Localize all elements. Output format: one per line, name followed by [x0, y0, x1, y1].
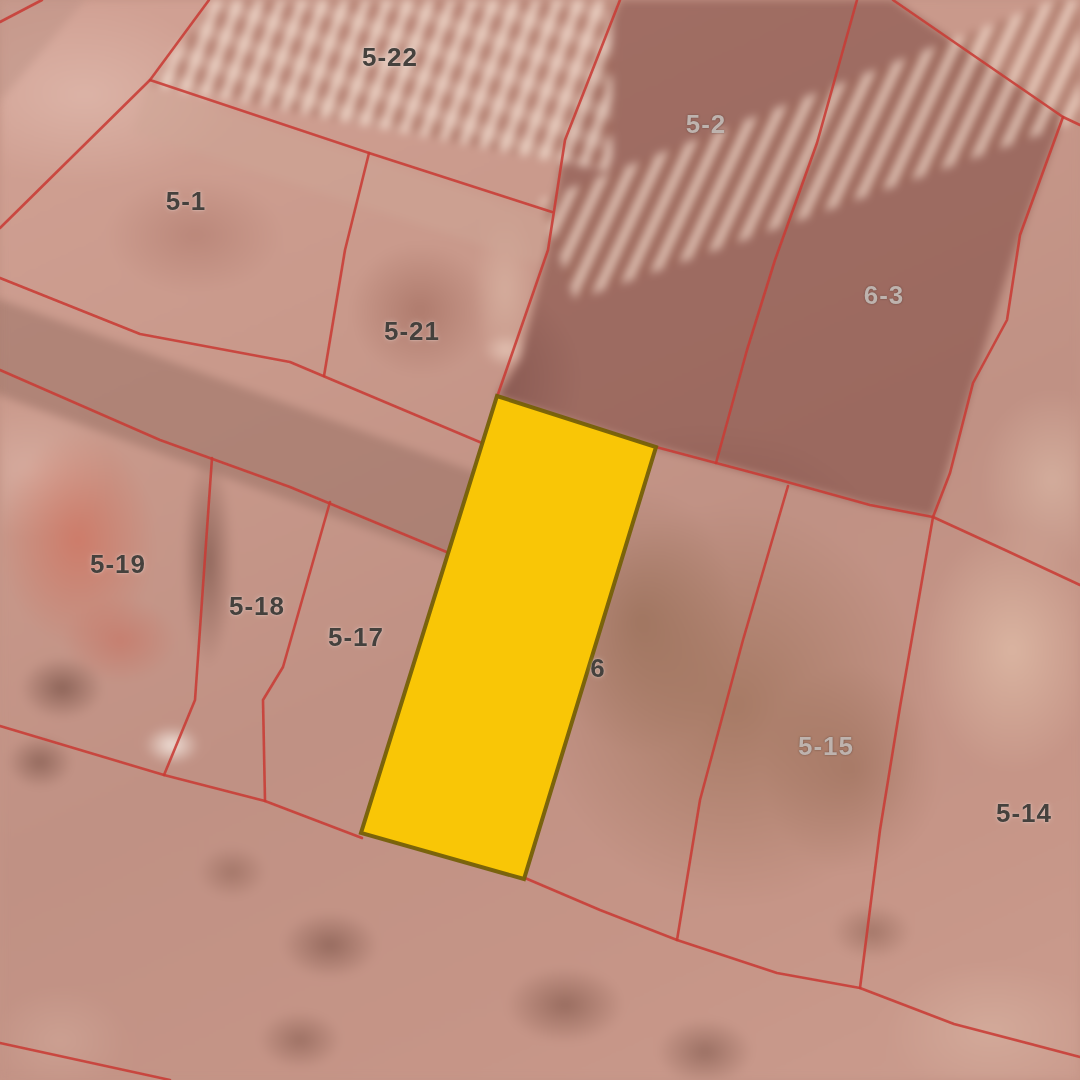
parcel-label-5-14: 5-14	[996, 798, 1052, 829]
parcel-label-5-17: 5-17	[328, 622, 384, 653]
parcel-label-5-2: 5-2	[686, 109, 727, 140]
parcel-label-5-1: 5-1	[166, 186, 207, 217]
parcel-label-5-22: 5-22	[362, 42, 418, 73]
parcel-label-5-21: 5-21	[384, 316, 440, 347]
parcel-label-5-19: 5-19	[90, 549, 146, 580]
parcel-label-5-18: 5-18	[229, 591, 285, 622]
parcel-label-6-3: 6-3	[864, 280, 905, 311]
cadastral-map: 5-225-25-16-35-215-195-185-1765-155-14	[0, 0, 1080, 1080]
parcel-label-6: 6	[590, 653, 605, 684]
parcel-label-5-15: 5-15	[798, 731, 854, 762]
parcel-labels: 5-225-25-16-35-215-195-185-1765-155-14	[0, 0, 1080, 1080]
